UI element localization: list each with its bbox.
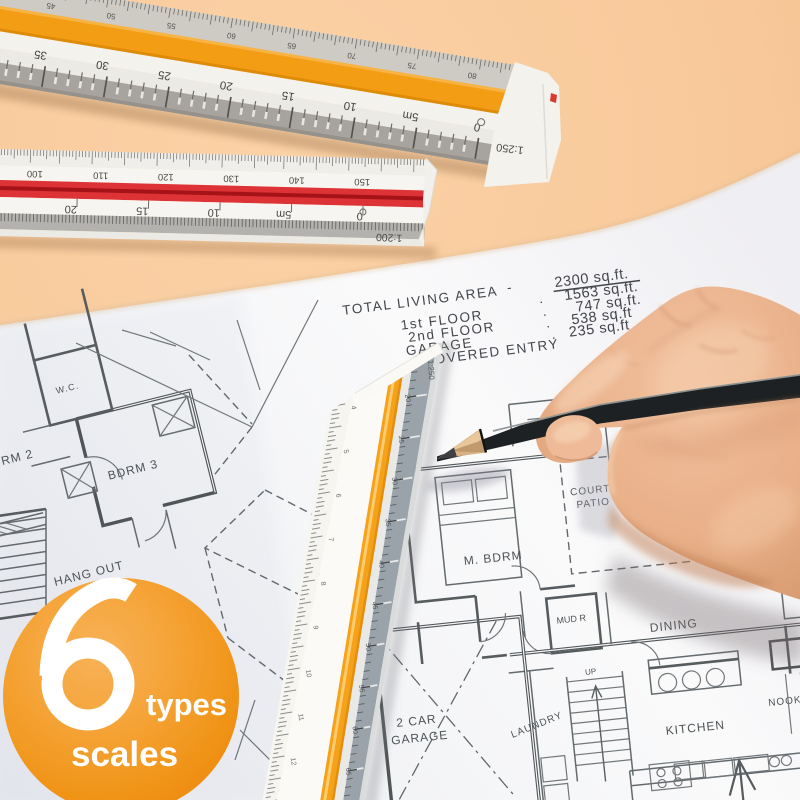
svg-text:40: 40 xyxy=(377,560,385,569)
svg-text:scales: scales xyxy=(71,735,178,774)
svg-text:110: 110 xyxy=(93,169,108,180)
svg-text:10: 10 xyxy=(304,669,312,678)
svg-text:25: 25 xyxy=(397,435,405,444)
svg-text:5m: 5m xyxy=(276,208,292,220)
svg-text:20: 20 xyxy=(219,78,234,92)
svg-text:35: 35 xyxy=(384,518,392,527)
svg-text:65: 65 xyxy=(344,767,352,776)
svg-text:15: 15 xyxy=(136,204,149,216)
svg-text:UP: UP xyxy=(585,667,597,677)
svg-text:100: 100 xyxy=(27,168,43,179)
svg-text:12: 12 xyxy=(289,757,297,766)
svg-text:120: 120 xyxy=(158,171,174,182)
svg-text:20: 20 xyxy=(403,394,411,403)
svg-text:55: 55 xyxy=(357,684,365,693)
svg-text:30: 30 xyxy=(390,477,398,486)
svg-text:10: 10 xyxy=(207,206,220,218)
svg-text:types: types xyxy=(146,687,227,722)
svg-text:20: 20 xyxy=(65,203,78,215)
svg-text:10: 10 xyxy=(343,99,358,113)
svg-text:45: 45 xyxy=(370,601,378,610)
svg-text:1:250: 1:250 xyxy=(426,360,436,381)
svg-text:1:200: 1:200 xyxy=(376,231,403,244)
svg-text:25: 25 xyxy=(157,68,172,82)
svg-text:11: 11 xyxy=(296,713,304,721)
svg-text:15: 15 xyxy=(281,88,296,102)
svg-text:150: 150 xyxy=(354,176,370,187)
svg-text:30: 30 xyxy=(95,58,110,72)
svg-text:130: 130 xyxy=(223,173,239,184)
svg-text:60: 60 xyxy=(351,726,359,735)
svg-text:50: 50 xyxy=(364,643,372,652)
svg-text:140: 140 xyxy=(289,174,305,185)
svg-text:35: 35 xyxy=(33,47,48,61)
